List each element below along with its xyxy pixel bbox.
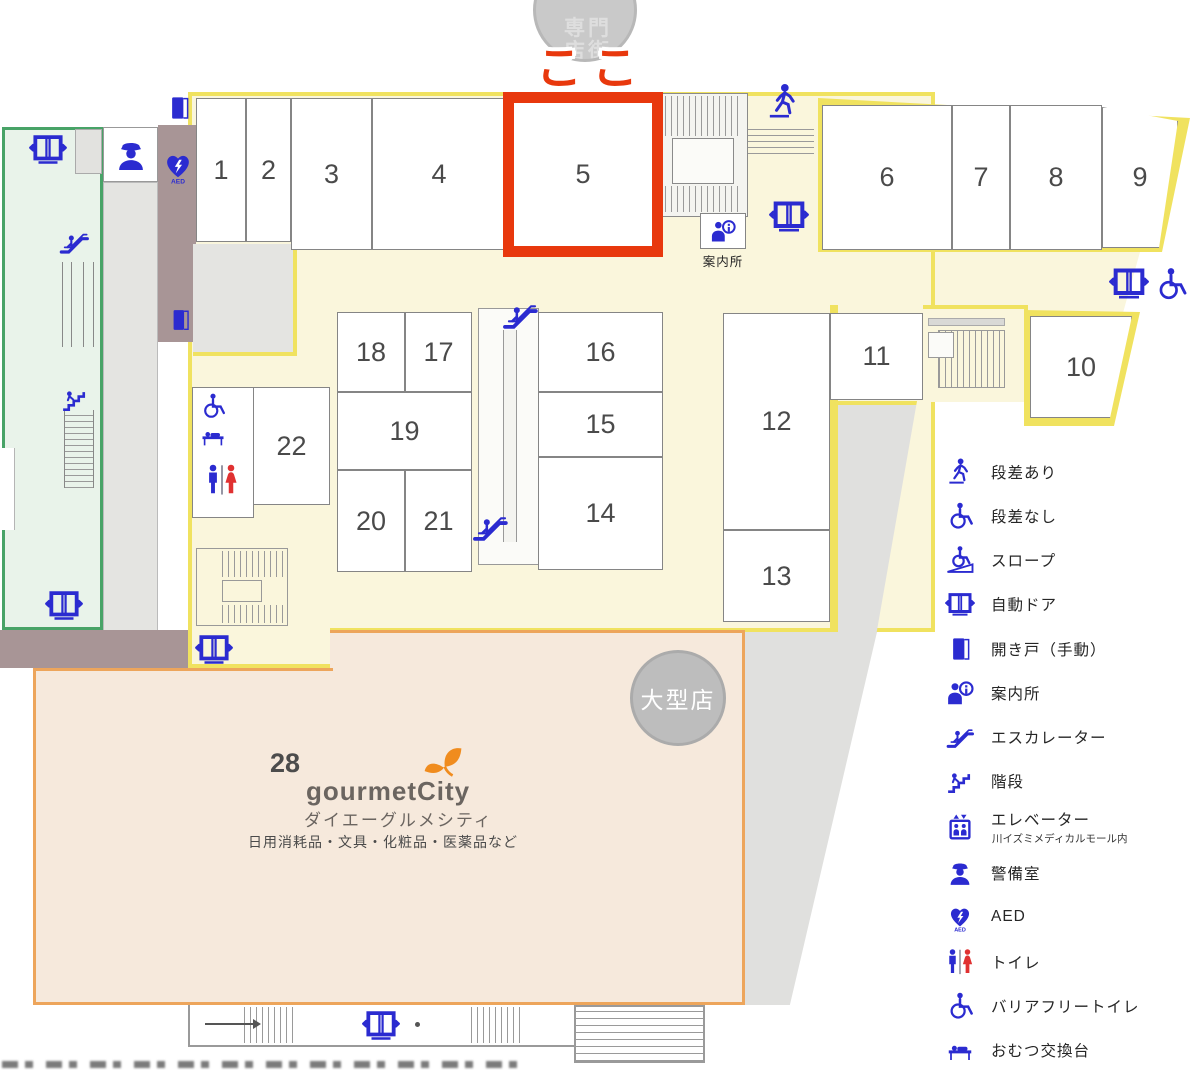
escalator-icon [942,720,978,754]
autodoor-icon [942,587,978,621]
legend-row-elevator: エレベーター川イズミメディカルモール内 [942,808,1200,846]
legend-label: スロープ [991,549,1056,571]
west-stairs-shaft [64,410,94,488]
backroom-area [193,244,297,356]
store-28-description: 日用消耗品・文具・化粧品・医薬品など [248,832,518,852]
north-staircase-steps [665,96,743,136]
auto-door-icon [362,1006,400,1044]
elevator-icon [942,810,978,844]
guard-icon [942,856,978,890]
diaper-change-icon [198,422,228,450]
direction-arrow [205,1023,255,1025]
store-unit-6: 6 [822,105,952,250]
barrier-free-toilet-icon [198,392,228,420]
store-unit-19: 19 [337,392,472,470]
store-unit-number: 21 [423,506,453,537]
large-store-badge: 大型店 [630,650,726,746]
store-unit-13: 13 [723,530,830,622]
store-unit-7: 7 [952,105,1010,250]
store-unit-number: 3 [324,159,339,190]
west-escalator-shaft [62,262,94,347]
store-unit-21: 21 [405,470,472,572]
auto-door-icon [28,130,68,168]
clipped-caption-text [2,1061,517,1068]
store-unit-11: 11 [830,313,923,400]
store-unit-number: 16 [585,337,615,368]
auto-door-icon [44,586,84,624]
store-unit-number: 17 [423,337,453,368]
store-unit-4: 4 [372,98,506,250]
legend-row-wheelchair: 段差なし [942,499,1200,533]
legend-row-escalator: エスカレーター [942,720,1200,754]
south-entrance-steps [244,1007,295,1043]
legend-sublabel: 川イズミメディカルモール内 [992,831,1127,846]
wheelchair-icon [942,989,978,1023]
escalator-icon [56,226,92,258]
store-unit-1: 1 [196,98,246,242]
legend-row-toilet: トイレ [942,945,1200,979]
legend-label: 段差あり [991,461,1057,483]
aed-icon [942,900,978,934]
security-guard-icon [112,136,150,174]
manual-door-icon [166,304,194,336]
legend-row-door: 開き戸（手動） [942,632,1200,666]
store-unit-15: 15 [538,392,663,457]
legend-row-info: 案内所 [942,676,1200,710]
legend-row-slope: スロープ [942,543,1200,577]
direction-arrowhead [253,1019,261,1029]
store-unit-20: 20 [337,470,405,572]
north-staircase-steps [665,186,743,212]
store-unit-number: 14 [585,498,615,529]
outside-area-southeast [745,632,877,1005]
walker-icon [942,455,978,489]
legend-label: トイレ [991,951,1041,973]
wheelchair-icon [942,499,978,533]
information-desk [700,213,746,249]
southwest-staircase-steps [222,551,284,577]
legend-row-autodoor: 自動ドア [942,587,1200,621]
legend: 段差あり段差なしスロープ自動ドア開き戸（手動）案内所エスカレーター階段エレベータ… [942,455,1200,1067]
step-walker-icon [764,82,804,122]
legend-row-stairs: 階段 [942,764,1200,798]
legend-label: バリアフリートイレ [991,995,1140,1017]
stairs-icon [58,384,92,414]
store-unit-number: 15 [585,409,615,440]
stairs-icon [942,764,978,798]
legend-label: おむつ交換台 [991,1039,1090,1061]
toilet-icon [942,945,978,979]
auto-door-icon [1108,263,1150,303]
store-unit-number: 19 [389,416,419,447]
legend-row-walker: 段差あり [942,455,1200,489]
store-unit-number: 10 [1066,352,1096,383]
service-strip-horizontal [0,630,188,668]
manual-door-icon [164,92,194,124]
store-unit-number: 7 [973,162,988,193]
southwest-staircase-landing [222,580,262,602]
store-unit-8: 8 [1010,105,1102,250]
info-icon [942,676,978,710]
store-unit-3: 3 [291,98,372,250]
south-entrance-steps [471,1007,520,1043]
legend-row-guard: 警備室 [942,856,1200,890]
store-unit-number: 1 [213,155,228,186]
store-28-name: ダイエーグルメシティ [304,806,493,831]
store-unit-number: 22 [276,431,306,462]
north-entrance-threshold [748,124,814,154]
legend-label: 案内所 [991,682,1041,704]
auto-door-icon [768,196,810,236]
floor-map: 大型店 28 gourmetCity ダイエーグルメシティ 日用消耗品・文具・化… [0,0,1200,1070]
store-unit-22: 22 [253,387,330,505]
south-staircase [574,1005,705,1063]
toilet-icon [204,460,240,500]
west-green-walkway [2,127,103,630]
store-unit-number: 11 [862,341,890,372]
store-unit-number: 6 [879,162,894,193]
info-desk-icon [707,217,739,245]
here-highlight-box [503,92,663,257]
store-unit-number: 8 [1048,162,1063,193]
store-unit-number: 12 [761,406,791,437]
diaper-icon [942,1033,978,1067]
legend-row-wheelchair: バリアフリートイレ [942,989,1200,1023]
information-desk-label: 案内所 [686,251,760,270]
store-unit-12: 12 [723,313,830,530]
west-wall-notch [0,448,15,530]
southwest-staircase-steps [222,605,286,623]
legend-row-aed: AED [942,900,1200,934]
escalator-icon [468,508,512,546]
aed-icon [160,146,196,186]
legend-row-diaper: おむつ交換台 [942,1033,1200,1067]
store-unit-18: 18 [337,312,405,392]
store-unit-number: 2 [261,155,276,186]
auto-door-icon [194,630,234,668]
legend-label: エレベーター [991,808,1127,830]
slope-icon [942,543,978,577]
store-unit-number: 4 [431,159,446,190]
green-walkway-notch [75,129,102,174]
store-unit-number: 9 [1132,162,1147,193]
legend-label: AED [991,908,1026,926]
legend-label: 段差なし [991,505,1057,527]
store-28-number: 28 [270,748,300,779]
no-step-wheelchair-icon [1152,266,1190,302]
legend-label: 階段 [991,770,1024,792]
escalator-icon [498,296,542,334]
west-gray-corridor [103,182,158,632]
door-icon [942,632,978,666]
store-unit-number: 18 [356,337,386,368]
legend-label: 開き戸（手動） [991,638,1107,660]
store-unit-14: 14 [538,457,663,570]
store-unit-number: 13 [761,561,791,592]
store-unit-2: 2 [246,98,291,242]
east-staircase-edge [928,318,1005,326]
path-dot [415,1022,420,1027]
here-label: ここ [512,32,662,98]
store-unit-17: 17 [405,312,472,392]
east-staircase-landing [928,332,954,358]
north-staircase-landing [672,138,734,184]
store-unit-16: 16 [538,312,663,392]
gourmet-city-leaf-icon [420,744,466,786]
legend-label: 警備室 [991,862,1041,884]
legend-label: 自動ドア [991,593,1057,615]
store-unit-number: 20 [356,506,386,537]
legend-label: エスカレーター [991,726,1107,748]
